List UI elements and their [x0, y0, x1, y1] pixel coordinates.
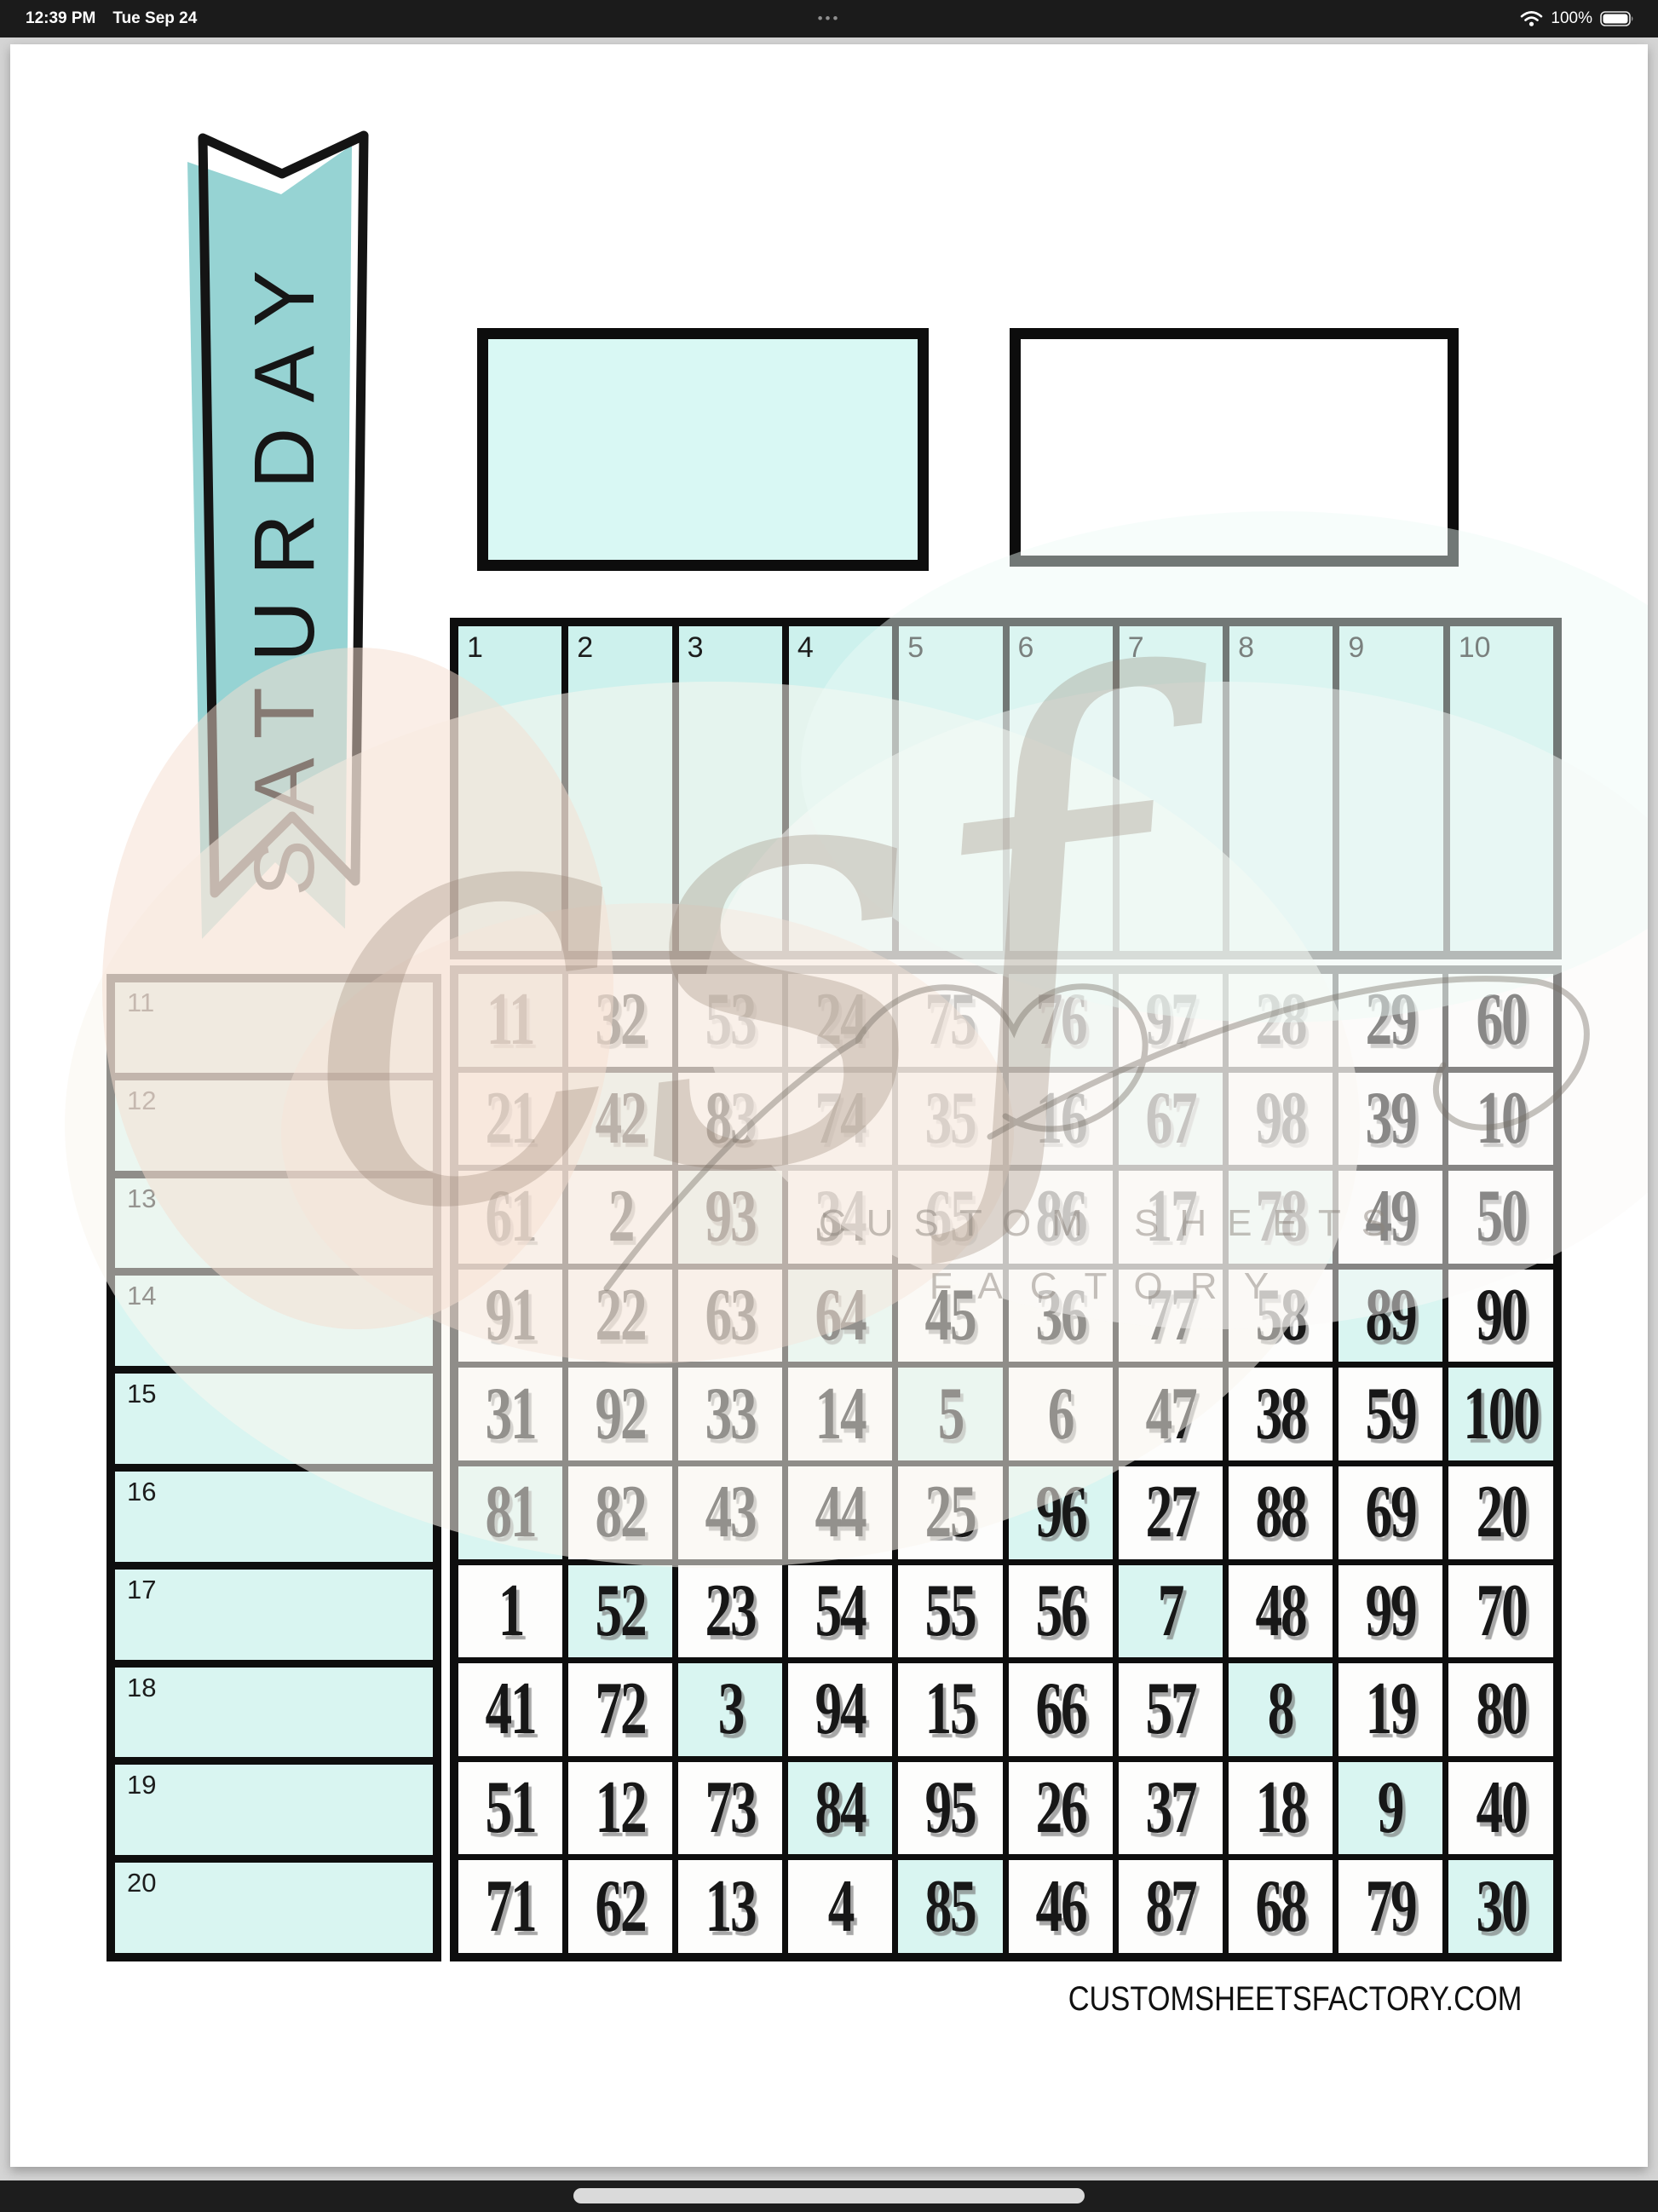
number-cell-13: 13 [678, 1860, 782, 1953]
number-cell-24: 24 [788, 974, 892, 1067]
number-value: 19 [1365, 1672, 1415, 1747]
number-cell-100: 100 [1448, 1368, 1553, 1460]
number-value: 86 [1035, 1179, 1085, 1254]
number-cell-18: 18 [1229, 1762, 1333, 1855]
number-cell-80: 80 [1448, 1663, 1553, 1756]
top-column-label: 5 [907, 631, 924, 665]
top-column-cell-4: 4 [789, 626, 892, 951]
number-value: 61 [486, 1179, 536, 1254]
number-value: 23 [705, 1574, 756, 1649]
number-cell-68: 68 [1229, 1860, 1333, 1953]
number-cell-41: 41 [458, 1663, 562, 1756]
number-value: 9 [1378, 1771, 1403, 1846]
number-value: 98 [1255, 1081, 1305, 1156]
number-cell-99: 99 [1338, 1565, 1442, 1658]
number-cell-53: 53 [678, 974, 782, 1067]
number-cell-46: 46 [1009, 1860, 1113, 1953]
number-cell-27: 27 [1119, 1466, 1223, 1559]
number-value: 83 [705, 1081, 756, 1156]
top-column-label: 1 [467, 631, 483, 665]
number-value: 97 [1145, 982, 1195, 1057]
number-cell-83: 83 [678, 1073, 782, 1166]
number-cell-73: 73 [678, 1762, 782, 1855]
number-cell-63: 63 [678, 1270, 782, 1362]
top-columns-grid: 12345678910 [450, 618, 1562, 959]
number-value: 65 [925, 1179, 976, 1254]
number-cell-76: 76 [1009, 974, 1113, 1067]
number-value: 35 [925, 1081, 976, 1156]
number-value: 18 [1255, 1771, 1305, 1846]
number-value: 68 [1255, 1869, 1305, 1944]
number-value: 32 [596, 982, 646, 1057]
clock-label: 12:39 PM [26, 9, 95, 28]
number-value: 57 [1145, 1672, 1195, 1747]
website-label: CUSTOMSHEETSFACTORY.COM [1068, 1980, 1522, 2019]
number-cell-6: 6 [1009, 1368, 1113, 1460]
number-value: 40 [1476, 1771, 1526, 1846]
number-cell-3: 3 [678, 1663, 782, 1756]
score-box-mint [477, 328, 929, 571]
date-label: Tue Sep 24 [112, 9, 197, 28]
number-cell-55: 55 [898, 1565, 1002, 1658]
number-value: 30 [1476, 1869, 1526, 1944]
number-value: 34 [815, 1179, 866, 1254]
side-row-cell-12: 12 [115, 1080, 433, 1171]
bottom-chrome-bar [0, 2180, 1658, 2212]
number-value: 10 [1476, 1081, 1526, 1156]
number-value: 58 [1255, 1278, 1305, 1353]
number-value: 67 [1145, 1081, 1195, 1156]
number-value: 29 [1365, 982, 1415, 1057]
number-value: 47 [1145, 1377, 1195, 1452]
number-cell-5: 5 [898, 1368, 1002, 1460]
number-value: 27 [1145, 1475, 1195, 1550]
number-value: 100 [1463, 1377, 1539, 1452]
number-cell-4: 4 [788, 1860, 892, 1953]
number-value: 33 [705, 1377, 756, 1452]
side-row-label: 15 [127, 1379, 156, 1409]
number-value: 59 [1365, 1377, 1415, 1452]
side-row-cell-20: 20 [115, 1863, 433, 1953]
number-cell-51: 51 [458, 1762, 562, 1855]
top-column-cell-2: 2 [568, 626, 671, 951]
number-cell-93: 93 [678, 1171, 782, 1264]
number-value: 99 [1365, 1574, 1415, 1649]
top-column-label: 6 [1018, 631, 1034, 665]
number-value: 63 [705, 1278, 756, 1353]
number-cell-90: 90 [1448, 1270, 1553, 1362]
number-cell-71: 71 [458, 1860, 562, 1953]
number-value: 31 [486, 1377, 536, 1452]
number-value: 20 [1476, 1475, 1526, 1550]
top-column-label: 4 [797, 631, 814, 665]
number-value: 3 [718, 1672, 744, 1747]
number-value: 88 [1255, 1475, 1305, 1550]
number-cell-59: 59 [1338, 1368, 1442, 1460]
number-value: 90 [1476, 1278, 1526, 1353]
number-value: 21 [486, 1081, 536, 1156]
number-value: 22 [596, 1278, 646, 1353]
number-cell-22: 22 [568, 1270, 672, 1362]
number-cell-37: 37 [1119, 1762, 1223, 1855]
number-cell-14: 14 [788, 1368, 892, 1460]
number-value: 1 [498, 1574, 523, 1649]
top-column-label: 2 [577, 631, 593, 665]
wifi-icon [1520, 10, 1543, 27]
hundred-number-grid: 1132532475769728296021428374351667983910… [450, 965, 1562, 1961]
number-value: 94 [815, 1672, 866, 1747]
number-cell-92: 92 [568, 1368, 672, 1460]
number-value: 45 [925, 1278, 976, 1353]
number-value: 87 [1145, 1869, 1195, 1944]
number-value: 77 [1145, 1278, 1195, 1353]
number-cell-40: 40 [1448, 1762, 1553, 1855]
battery-icon [1600, 10, 1636, 27]
number-cell-39: 39 [1338, 1073, 1442, 1166]
number-value: 84 [815, 1771, 866, 1846]
number-cell-42: 42 [568, 1073, 672, 1166]
number-cell-34: 34 [788, 1171, 892, 1264]
side-row-label: 16 [127, 1477, 156, 1507]
side-row-label: 14 [127, 1281, 156, 1311]
number-value: 43 [705, 1475, 756, 1550]
number-cell-91: 91 [458, 1270, 562, 1362]
number-value: 54 [815, 1574, 866, 1649]
number-cell-9: 9 [1338, 1762, 1442, 1855]
number-cell-29: 29 [1338, 974, 1442, 1067]
number-value: 41 [486, 1672, 536, 1747]
number-cell-35: 35 [898, 1073, 1002, 1166]
number-value: 50 [1476, 1179, 1526, 1254]
number-value: 26 [1035, 1771, 1085, 1846]
number-cell-47: 47 [1119, 1368, 1223, 1460]
number-cell-72: 72 [568, 1663, 672, 1756]
number-value: 14 [815, 1377, 866, 1452]
top-column-label: 9 [1348, 631, 1364, 665]
number-cell-21: 21 [458, 1073, 562, 1166]
number-cell-95: 95 [898, 1762, 1002, 1855]
top-column-label: 3 [688, 631, 704, 665]
number-cell-66: 66 [1009, 1663, 1113, 1756]
number-value: 71 [486, 1869, 536, 1944]
side-row-cell-14: 14 [115, 1276, 433, 1366]
number-value: 15 [925, 1672, 976, 1747]
number-value: 70 [1476, 1574, 1526, 1649]
number-cell-32: 32 [568, 974, 672, 1067]
number-cell-77: 77 [1119, 1270, 1223, 1362]
number-cell-61: 61 [458, 1171, 562, 1264]
number-value: 24 [815, 982, 866, 1057]
side-row-label: 12 [127, 1086, 156, 1116]
number-cell-79: 79 [1338, 1860, 1442, 1953]
number-value: 12 [596, 1771, 646, 1846]
side-row-label: 11 [127, 988, 154, 1018]
number-cell-84: 84 [788, 1762, 892, 1855]
score-box-white [1010, 328, 1459, 567]
battery-percent-label: 100% [1551, 9, 1592, 28]
number-cell-15: 15 [898, 1663, 1002, 1756]
number-cell-50: 50 [1448, 1171, 1553, 1264]
number-value: 53 [705, 982, 756, 1057]
number-value: 11 [486, 982, 534, 1057]
side-row-label: 17 [127, 1575, 156, 1605]
side-row-label: 18 [127, 1673, 156, 1703]
number-cell-44: 44 [788, 1466, 892, 1559]
home-indicator[interactable] [573, 2188, 1085, 2203]
number-cell-94: 94 [788, 1663, 892, 1756]
number-value: 55 [925, 1574, 976, 1649]
number-cell-1: 1 [458, 1565, 562, 1658]
top-column-label: 7 [1128, 631, 1144, 665]
number-cell-64: 64 [788, 1270, 892, 1362]
number-cell-70: 70 [1448, 1565, 1553, 1658]
saturday-banner: SATURDAY [166, 128, 447, 1005]
number-value: 73 [705, 1771, 756, 1846]
number-value: 38 [1255, 1377, 1305, 1452]
number-cell-56: 56 [1009, 1565, 1113, 1658]
side-row-cell-15: 15 [115, 1374, 433, 1464]
planner-page: SATURDAY 12345678910 1112131415161718192… [10, 44, 1648, 2167]
number-cell-16: 16 [1009, 1073, 1113, 1166]
top-column-cell-1: 1 [458, 626, 561, 951]
number-value: 25 [925, 1475, 976, 1550]
number-value: 7 [1158, 1574, 1183, 1649]
number-value: 36 [1035, 1278, 1085, 1353]
number-cell-69: 69 [1338, 1466, 1442, 1559]
number-value: 46 [1035, 1869, 1085, 1944]
number-value: 72 [596, 1672, 646, 1747]
side-row-cell-16: 16 [115, 1472, 433, 1562]
number-cell-7: 7 [1119, 1565, 1223, 1658]
status-bar: 12:39 PM Tue Sep 24 ••• 100% [0, 0, 1658, 37]
number-value: 17 [1145, 1179, 1195, 1254]
number-value: 42 [596, 1081, 646, 1156]
number-cell-25: 25 [898, 1466, 1002, 1559]
number-value: 56 [1035, 1574, 1085, 1649]
number-value: 13 [705, 1869, 756, 1944]
number-value: 81 [486, 1475, 536, 1550]
number-cell-98: 98 [1229, 1073, 1333, 1166]
number-value: 28 [1255, 982, 1305, 1057]
number-value: 76 [1035, 982, 1085, 1057]
number-cell-8: 8 [1229, 1663, 1333, 1756]
number-cell-67: 67 [1119, 1073, 1223, 1166]
number-cell-45: 45 [898, 1270, 1002, 1362]
number-value: 52 [596, 1574, 646, 1649]
number-cell-38: 38 [1229, 1368, 1333, 1460]
top-column-cell-3: 3 [679, 626, 782, 951]
number-cell-87: 87 [1119, 1860, 1223, 1953]
number-value: 85 [925, 1869, 976, 1944]
number-value: 74 [815, 1081, 866, 1156]
number-cell-30: 30 [1448, 1860, 1553, 1953]
top-column-cell-6: 6 [1010, 626, 1113, 951]
number-value: 80 [1476, 1672, 1526, 1747]
number-cell-88: 88 [1229, 1466, 1333, 1559]
number-cell-74: 74 [788, 1073, 892, 1166]
ipad-screen: 12:39 PM Tue Sep 24 ••• 100% SATURDAY [0, 0, 1658, 2212]
number-cell-2: 2 [568, 1171, 672, 1264]
number-value: 60 [1476, 982, 1526, 1057]
number-cell-20: 20 [1448, 1466, 1553, 1559]
number-cell-65: 65 [898, 1171, 1002, 1264]
number-cell-58: 58 [1229, 1270, 1333, 1362]
number-cell-60: 60 [1448, 974, 1553, 1067]
number-cell-12: 12 [568, 1762, 672, 1855]
number-value: 69 [1365, 1475, 1415, 1550]
side-row-cell-13: 13 [115, 1178, 433, 1269]
number-value: 6 [1048, 1377, 1074, 1452]
number-cell-97: 97 [1119, 974, 1223, 1067]
number-value: 92 [596, 1377, 646, 1452]
side-row-cell-18: 18 [115, 1668, 433, 1758]
number-value: 49 [1365, 1179, 1415, 1254]
number-value: 51 [486, 1771, 536, 1846]
number-value: 16 [1035, 1081, 1085, 1156]
number-cell-96: 96 [1009, 1466, 1113, 1559]
number-value: 78 [1255, 1179, 1305, 1254]
top-column-cell-5: 5 [899, 626, 1002, 951]
number-cell-19: 19 [1338, 1663, 1442, 1756]
number-value: 64 [815, 1278, 866, 1353]
number-value: 95 [925, 1771, 976, 1846]
number-cell-43: 43 [678, 1466, 782, 1559]
number-cell-26: 26 [1009, 1762, 1113, 1855]
number-cell-49: 49 [1338, 1171, 1442, 1264]
number-value: 44 [815, 1475, 866, 1550]
number-cell-75: 75 [898, 974, 1002, 1067]
top-column-label: 8 [1238, 631, 1254, 665]
number-cell-52: 52 [568, 1565, 672, 1658]
top-column-cell-8: 8 [1229, 626, 1333, 951]
number-cell-57: 57 [1119, 1663, 1223, 1756]
top-column-label: 10 [1459, 631, 1491, 665]
number-cell-10: 10 [1448, 1073, 1553, 1166]
number-cell-62: 62 [568, 1860, 672, 1953]
number-cell-85: 85 [898, 1860, 1002, 1953]
number-value: 62 [596, 1869, 646, 1944]
number-cell-78: 78 [1229, 1171, 1333, 1264]
number-value: 66 [1035, 1672, 1085, 1747]
number-cell-89: 89 [1338, 1270, 1442, 1362]
number-value: 75 [925, 982, 976, 1057]
number-value: 89 [1365, 1278, 1415, 1353]
number-cell-33: 33 [678, 1368, 782, 1460]
number-cell-54: 54 [788, 1565, 892, 1658]
side-row-cell-19: 19 [115, 1765, 433, 1855]
top-column-cell-9: 9 [1339, 626, 1442, 951]
side-row-cell-11: 11 [115, 982, 433, 1073]
number-cell-82: 82 [568, 1466, 672, 1559]
number-cell-31: 31 [458, 1368, 562, 1460]
number-value: 93 [705, 1179, 756, 1254]
number-value: 2 [607, 1179, 633, 1254]
number-value: 91 [486, 1278, 536, 1353]
side-row-label: 20 [127, 1868, 156, 1898]
number-cell-23: 23 [678, 1565, 782, 1658]
number-value: 37 [1145, 1771, 1195, 1846]
number-cell-28: 28 [1229, 974, 1333, 1067]
number-cell-36: 36 [1009, 1270, 1113, 1362]
side-row-label: 19 [127, 1770, 156, 1800]
number-value: 82 [596, 1475, 646, 1550]
number-value: 96 [1035, 1475, 1085, 1550]
number-cell-48: 48 [1229, 1565, 1333, 1658]
side-row-label: 13 [127, 1184, 156, 1214]
number-cell-17: 17 [1119, 1171, 1223, 1264]
number-value: 4 [828, 1869, 854, 1944]
number-value: 48 [1255, 1574, 1305, 1649]
top-column-cell-10: 10 [1450, 626, 1553, 951]
side-rows-grid: 11121314151617181920 [107, 974, 441, 1961]
number-cell-81: 81 [458, 1466, 562, 1559]
side-row-cell-17: 17 [115, 1570, 433, 1660]
number-value: 39 [1365, 1081, 1415, 1156]
number-value: 8 [1268, 1672, 1293, 1747]
number-cell-11: 11 [458, 974, 562, 1067]
top-column-cell-7: 7 [1120, 626, 1223, 951]
multitask-dots-icon[interactable]: ••• [818, 10, 841, 27]
number-value: 5 [938, 1377, 964, 1452]
number-cell-86: 86 [1009, 1171, 1113, 1264]
number-value: 79 [1365, 1869, 1415, 1944]
